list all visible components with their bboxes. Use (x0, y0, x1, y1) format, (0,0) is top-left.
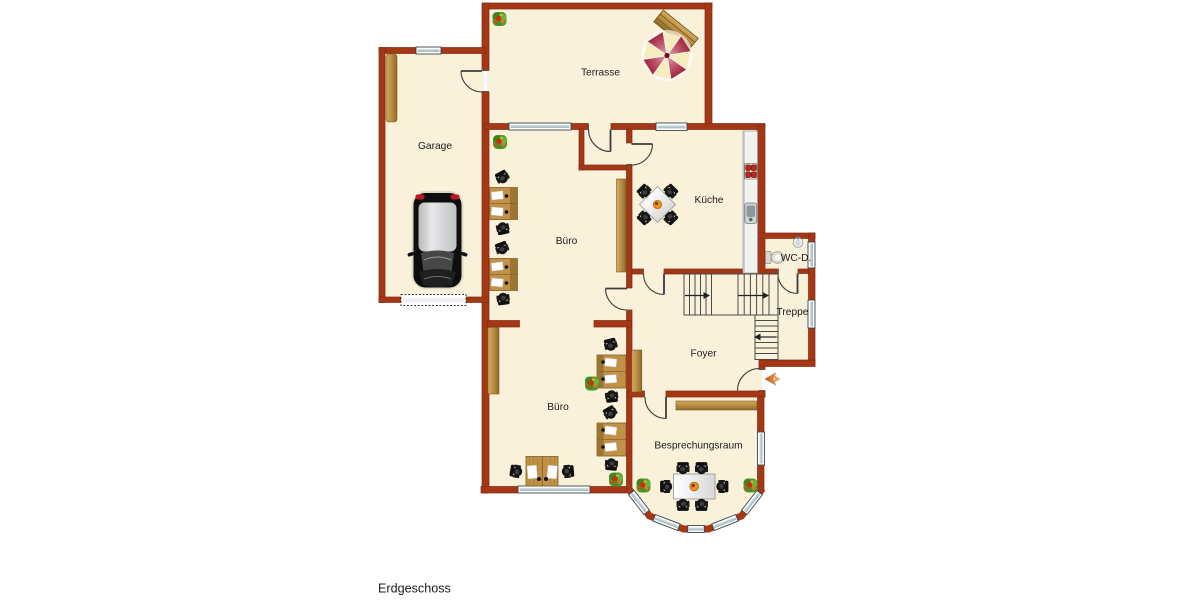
svg-text:Terrasse: Terrasse (581, 68, 620, 79)
svg-text:Treppe: Treppe (777, 307, 809, 318)
svg-text:Küche: Küche (695, 195, 724, 206)
svg-text:Foyer: Foyer (690, 349, 717, 360)
svg-text:Büro: Büro (556, 236, 578, 247)
svg-text:Erdgeschoss: Erdgeschoss (378, 582, 451, 596)
svg-text:Garage: Garage (418, 141, 452, 152)
svg-text:WC-D.: WC-D. (781, 253, 812, 264)
svg-text:Büro: Büro (547, 402, 569, 413)
svg-text:Besprechungsraum: Besprechungsraum (654, 440, 742, 451)
